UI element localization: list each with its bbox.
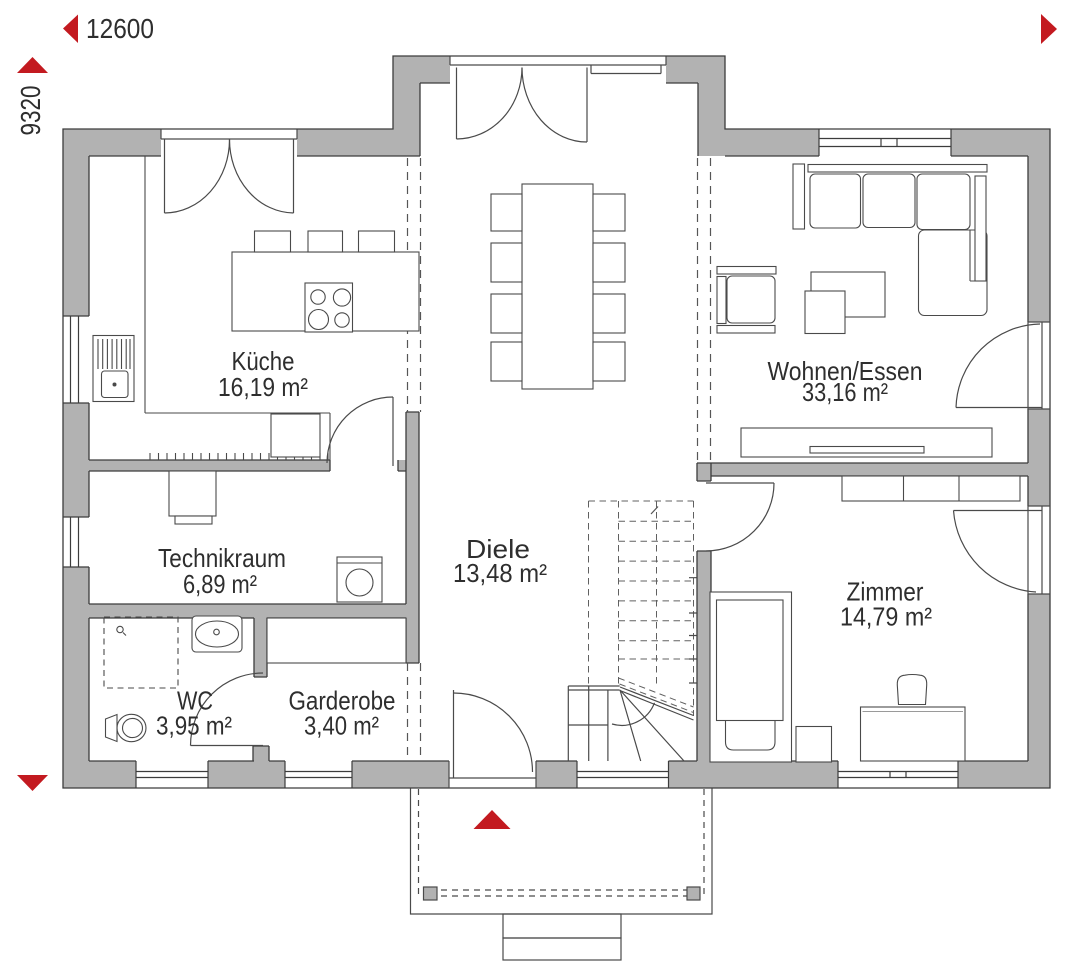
- svg-text:3,40 m²: 3,40 m²: [304, 711, 379, 741]
- svg-text:14,79 m²: 14,79 m²: [840, 602, 932, 632]
- svg-text:16,19 m²: 16,19 m²: [218, 372, 308, 402]
- svg-text:9320: 9320: [15, 86, 46, 136]
- svg-text:12600: 12600: [86, 13, 154, 44]
- svg-text:33,16 m²: 33,16 m²: [802, 377, 888, 407]
- svg-text:6,89 m²: 6,89 m²: [183, 569, 257, 599]
- svg-text:13,48 m²: 13,48 m²: [453, 558, 547, 588]
- svg-text:3,95 m²: 3,95 m²: [156, 711, 232, 741]
